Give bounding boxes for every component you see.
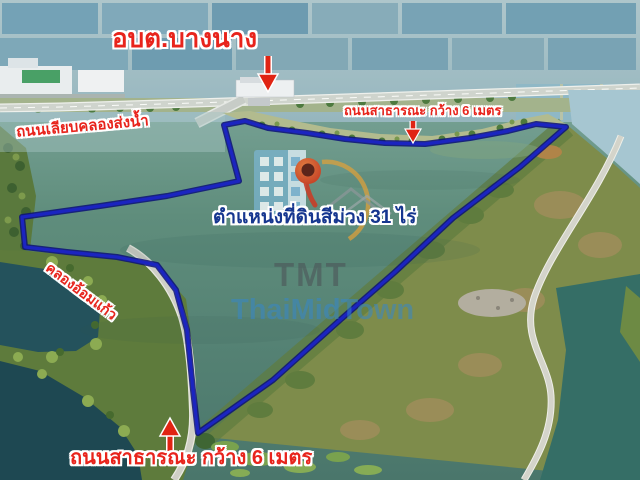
public-road-top-label: ถนนสาธารณะ กว้าง 6 เมตร (344, 104, 501, 118)
debris-patch (458, 289, 526, 317)
watermark-initials: TMT (274, 256, 348, 294)
plot-caption-label: ตำแหน่งที่ดินสีม่วง 31 ไร่ (213, 208, 416, 228)
photo-background (0, 0, 640, 480)
public-road-bottom-label: ถนนสาธารณะ กว้าง 6 เมตร (70, 448, 312, 469)
subdistrict-office-label: อบต.บางนาง (112, 25, 257, 52)
top-background-strip (0, 0, 640, 123)
watermark-name: ThaiMidTown (231, 294, 414, 327)
aerial-photo: อบต.บางนาง ถนนเลียบคลองส่งน้ำ ถนนสาธารณะ… (0, 0, 640, 480)
